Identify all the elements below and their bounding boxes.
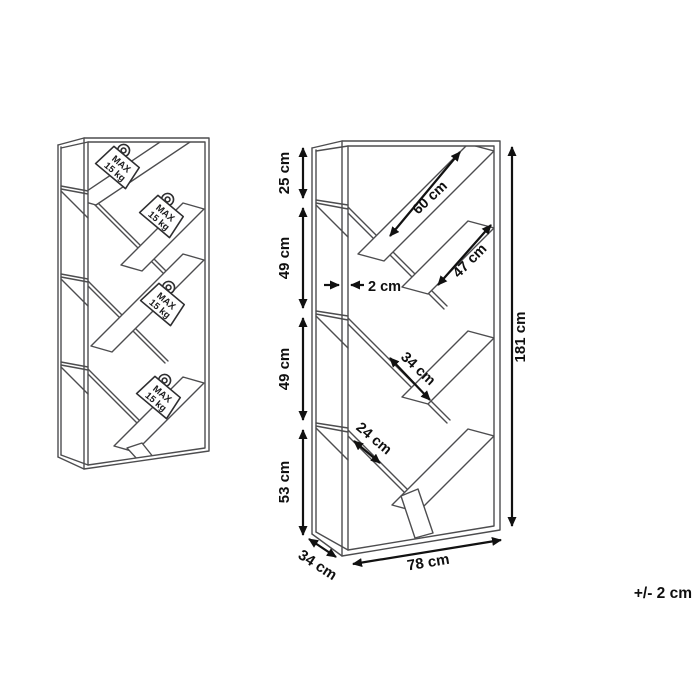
- dim-label-25cm: 25 cm: [276, 152, 293, 195]
- dim-label-34cm-depth: 34 cm: [295, 547, 340, 584]
- dim-label-49cm-upper: 49 cm: [276, 237, 293, 280]
- dim-label-24cm: 24 cm: [353, 420, 395, 459]
- tolerance-note: +/- 2 cm: [634, 585, 692, 602]
- dim-label-53cm: 53 cm: [276, 461, 293, 504]
- shelf-drawing-with-tags: MAX 15 kg MAX 15 kg MAX 15 kg MAX 15 kg: [58, 132, 209, 469]
- shelf-drawing-with-dimensions: 25 cm 49 cm 49 cm 53 cm 2 cm 60 cm 47 cm…: [276, 141, 529, 584]
- dim-label-2cm: 2 cm: [368, 279, 401, 295]
- figure-canvas: MAX 15 kg MAX 15 kg MAX 15 kg MAX 15 kg: [0, 0, 700, 700]
- dim-label-49cm-lower: 49 cm: [276, 348, 293, 391]
- left-figure-shelves: [75, 132, 204, 460]
- dim-label-181cm: 181 cm: [512, 312, 529, 363]
- dimension-diagram-page: MAX 15 kg MAX 15 kg MAX 15 kg MAX 15 kg: [0, 0, 700, 700]
- weight-tag-3: MAX 15 kg: [141, 275, 193, 326]
- right-figure-shelf-supports: [316, 200, 348, 460]
